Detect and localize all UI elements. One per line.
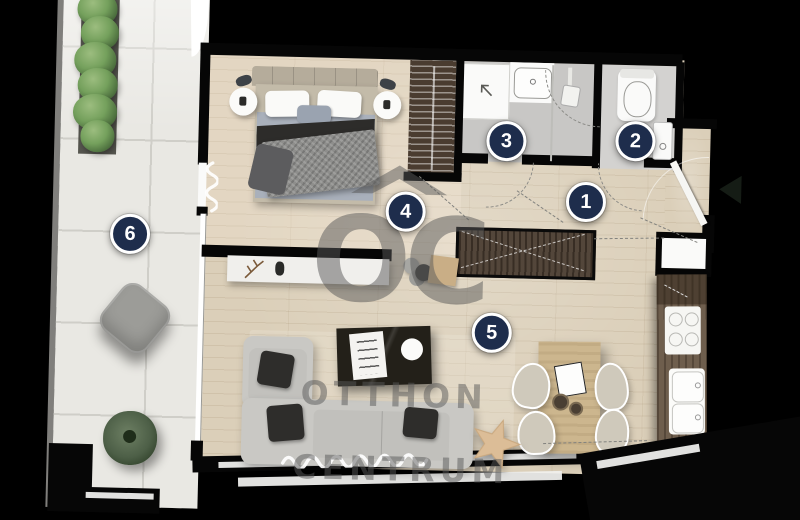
burner [669, 312, 683, 326]
sink-drain [695, 382, 701, 388]
wardrobe-frame [403, 172, 461, 182]
burner [685, 312, 699, 326]
sideboard [227, 255, 390, 285]
toilet [617, 69, 656, 122]
book-on-table [554, 362, 587, 398]
floorplan-canvas: OC OTTHON CENTRUM 123456 [0, 0, 800, 520]
terrace-plant [102, 410, 157, 465]
hall-wardrobe-x [455, 227, 596, 280]
lamp-icon [239, 97, 246, 106]
curtain-squiggle [204, 161, 219, 217]
dinner-plate [552, 394, 569, 411]
basin-drain [659, 143, 666, 150]
hedge-bush [80, 120, 115, 153]
floor-plan: OC OTTHON CENTRUM 123456 [0, 0, 800, 520]
burner [685, 332, 699, 346]
burner [669, 332, 683, 346]
sink-drain [695, 414, 701, 420]
wardrobe-rail [431, 66, 435, 170]
sofa-pillow [402, 407, 439, 440]
lamp-icon [383, 100, 390, 109]
entrance-arrow-icon [719, 175, 742, 204]
outer-window-sill [238, 471, 562, 487]
sofa-pillow [256, 350, 295, 389]
decor-plate [401, 338, 424, 361]
vase-decor [275, 261, 284, 275]
entrance-top-wall [667, 118, 717, 129]
corner-window-sill [596, 444, 700, 469]
wood-board [428, 255, 459, 286]
washing-machine [461, 63, 510, 120]
dinner-plate [569, 402, 583, 416]
magazine [349, 331, 387, 380]
plant-center [123, 430, 136, 443]
toilet-bowl [623, 81, 652, 118]
coffee-table [336, 326, 432, 387]
sofa-pillow [266, 403, 305, 442]
terrace-bottom-wall [79, 487, 160, 514]
counter-dark-section [657, 274, 707, 304]
kitchen-window [661, 238, 706, 269]
wardrobe-hangers [408, 60, 457, 177]
wardrobe-x-line [461, 234, 585, 268]
washer-arrow-icon [476, 80, 494, 98]
dried-branch-decor [243, 258, 270, 281]
bed-pillow-accent [297, 105, 331, 124]
toilet-tank [620, 69, 654, 79]
